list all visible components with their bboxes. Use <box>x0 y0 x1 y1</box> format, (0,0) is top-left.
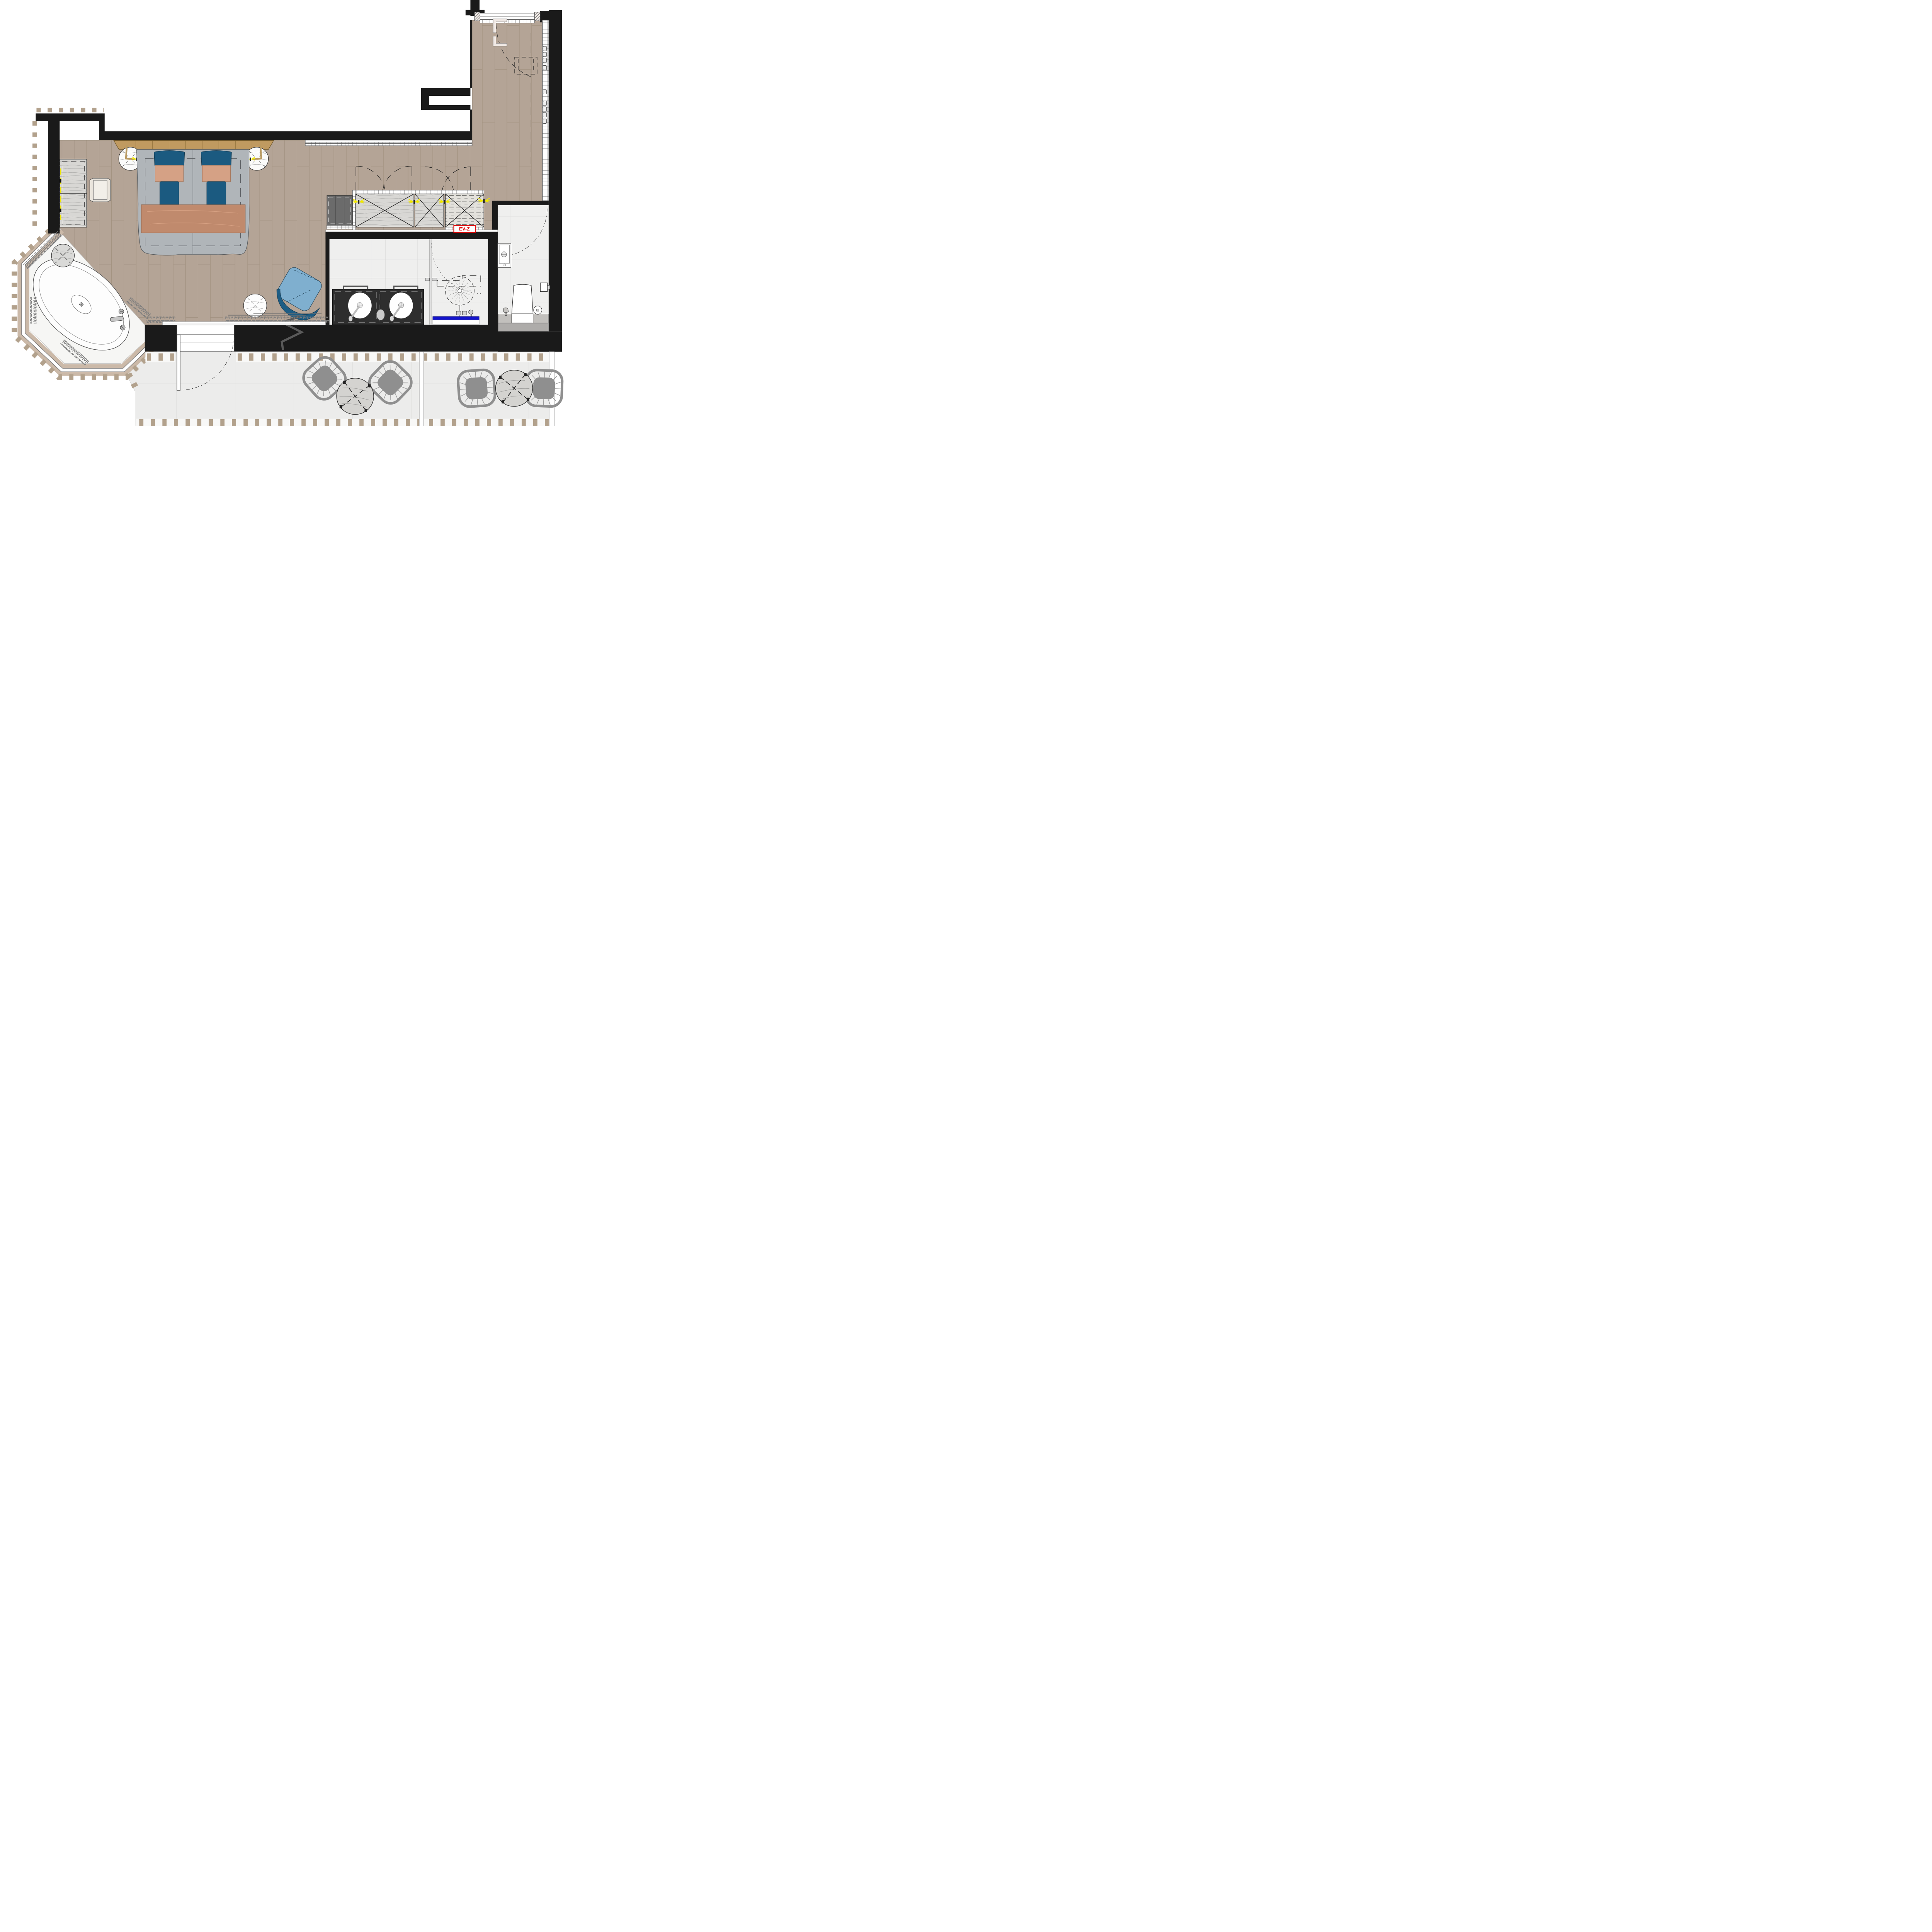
wall-shaft-b <box>421 88 429 110</box>
wall-top-left <box>36 113 104 121</box>
floor-plan-drawing: EV-Z <box>0 0 574 426</box>
entry-threshold <box>480 20 534 23</box>
unit-tag-evz: EV-Z <box>454 225 475 232</box>
amenity-dish <box>377 310 385 320</box>
dresser <box>59 159 87 227</box>
floor-plan-canvas: EV-Z <box>0 0 574 426</box>
terrace-divider <box>419 352 424 426</box>
wall-bottom-a <box>145 325 177 352</box>
entry-jamb-left <box>474 12 480 21</box>
shower-drain-blue <box>433 316 479 320</box>
floor-drain-rosette <box>534 306 542 315</box>
bedroom-window-sill <box>162 321 325 325</box>
wall-wc-left-upper <box>492 201 498 232</box>
minibar-cabinet <box>327 196 352 226</box>
wall-wc-top <box>492 201 549 205</box>
wall-bedroom-top <box>99 131 472 140</box>
wall-bathroom-left <box>326 232 330 325</box>
wardrobe-unit-3-shelves <box>446 194 484 227</box>
terrace-door-leaf <box>177 335 180 391</box>
vanity <box>332 286 424 325</box>
wall-basin <box>498 243 511 267</box>
double-bed <box>137 150 249 255</box>
wall-bottom-wc <box>498 332 562 352</box>
closet-top-tick-strip <box>355 190 484 194</box>
wall-right-exterior <box>549 10 562 332</box>
copper-foot-throw <box>141 205 245 233</box>
toilet <box>512 284 533 323</box>
unit-tag-text: EV-Z <box>459 227 470 232</box>
wall-left <box>48 113 60 233</box>
ottoman-stool <box>90 178 111 202</box>
wardrobe-unit-1 <box>355 194 414 227</box>
wall-corridor-left-lower <box>470 109 472 132</box>
wall-bottom-b <box>234 325 498 352</box>
closet-bottom-tick-a <box>327 225 355 229</box>
entry-jamb-right <box>535 12 540 21</box>
dressing-top-glazing <box>305 140 472 146</box>
wardrobe-unit-2 <box>415 194 444 227</box>
wall-corridor-left-upper <box>470 20 472 88</box>
wall-bathroom-wc <box>488 232 498 332</box>
headboard <box>114 140 274 149</box>
wall-shaft-c <box>429 105 471 110</box>
tub-side-table <box>51 244 74 267</box>
